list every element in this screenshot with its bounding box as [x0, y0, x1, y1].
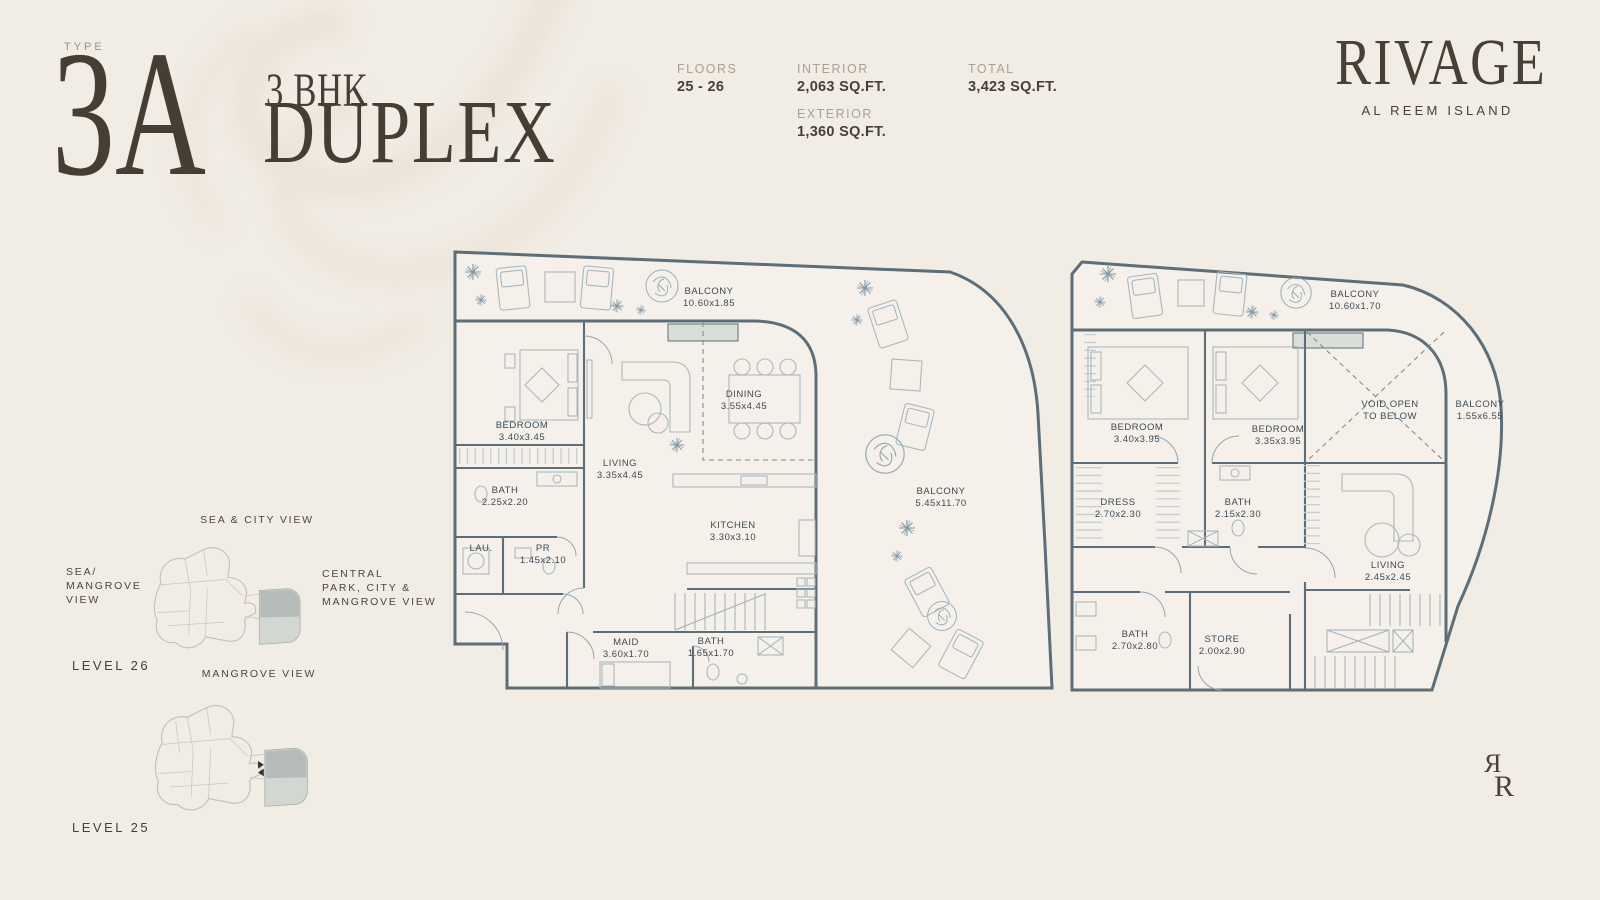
room-label-void: VOID OPEN TO BELOW	[1361, 399, 1418, 422]
svg-text:2.70x2.30: 2.70x2.30	[1095, 509, 1141, 520]
svg-text:BEDROOM: BEDROOM	[496, 420, 549, 431]
svg-text:BATH: BATH	[1122, 629, 1149, 640]
svg-text:LIVING: LIVING	[1371, 560, 1405, 571]
duplex-text: DUPLEX	[263, 88, 557, 178]
stat-floors-value: 25 - 26	[677, 79, 737, 95]
room-label-dining: DINING 3.55x4.45	[721, 389, 767, 412]
room-label-balcony-side: BALCONY 1.55x6.55	[1456, 399, 1505, 422]
svg-text:LIVING: LIVING	[603, 458, 637, 469]
stat-exterior: EXTERIOR 1,360 SQ.FT.	[797, 107, 886, 140]
room-label-store: STORE 2.00x2.90	[1199, 634, 1245, 657]
svg-text:3.35x3.95: 3.35x3.95	[1255, 436, 1301, 447]
svg-text:1.55x6.55: 1.55x6.55	[1457, 411, 1503, 422]
svg-text:1.65x1.70: 1.65x1.70	[688, 648, 734, 659]
stat-total-value: 3,423 SQ.FT.	[968, 79, 1057, 95]
keyplan-view-right-line3: MANGROVE VIEW	[322, 595, 436, 609]
brand-location: AL REEM ISLAND	[1335, 103, 1540, 118]
svg-text:LAU.: LAU.	[469, 543, 492, 554]
room-label-balcony-top: BALCONY 10.60x1.70	[1329, 289, 1381, 312]
svg-text:DRESS: DRESS	[1100, 497, 1135, 508]
svg-text:BEDROOM: BEDROOM	[1111, 422, 1164, 433]
svg-text:BALCONY: BALCONY	[1456, 399, 1505, 410]
svg-text:2.00x2.90: 2.00x2.90	[1199, 646, 1245, 657]
floorplan-brochure-page: TYPE 3A 3 BHK DUPLEX FLOORS 25 - 26 INTE…	[0, 0, 1600, 900]
keyplan-level-26-diagram	[146, 534, 302, 660]
keyplan-view-left-line3: VIEW	[66, 593, 142, 607]
svg-text:BATH: BATH	[1225, 497, 1252, 508]
svg-text:2.15x2.30: 2.15x2.30	[1215, 509, 1261, 520]
svg-text:BALCONY: BALCONY	[1331, 289, 1380, 300]
svg-text:5.45x11.70: 5.45x11.70	[915, 498, 966, 509]
svg-text:STORE: STORE	[1204, 634, 1239, 645]
brand-logo-text: RIVAGE	[1335, 30, 1547, 96]
keyplan-view-right-line1: CENTRAL	[322, 567, 436, 581]
svg-text:2.70x2.80: 2.70x2.80	[1112, 641, 1158, 652]
svg-text:KITCHEN: KITCHEN	[710, 520, 755, 531]
stat-exterior-label: EXTERIOR	[797, 107, 886, 121]
keyplan-view-left-line2: MANGROVE	[66, 579, 142, 593]
stat-floors-label: FLOORS	[677, 62, 737, 76]
svg-text:BEDROOM: BEDROOM	[1252, 424, 1305, 435]
svg-text:3.60x1.70: 3.60x1.70	[603, 649, 649, 660]
monogram-right-glyph: R	[1494, 770, 1514, 803]
svg-text:BALCONY: BALCONY	[685, 286, 734, 297]
svg-text:MAID: MAID	[613, 637, 639, 648]
svg-text:BATH: BATH	[698, 636, 725, 647]
room-label-living: LIVING 3.35x4.45	[597, 458, 643, 481]
unit-type-value: 3A	[52, 24, 272, 204]
svg-text:3.30x3.10: 3.30x3.10	[710, 532, 756, 543]
room-label-balcony-side: BALCONY 5.45x11.70	[915, 486, 966, 509]
floorplan-level-26: BALCONY 10.60x1.70 BEDROOM 3.40x3.95 BED…	[1060, 252, 1510, 692]
ac-ledge	[1293, 333, 1363, 348]
brand-monogram-icon: Я R	[1468, 744, 1540, 808]
keyplan-level-25-diagram	[144, 696, 312, 818]
stat-interior-label: INTERIOR	[797, 62, 886, 76]
keyplan-view-right: CENTRAL PARK, CITY & MANGROVE VIEW	[322, 567, 436, 609]
stat-exterior-value: 1,360 SQ.FT.	[797, 124, 886, 140]
svg-text:3.35x4.45: 3.35x4.45	[597, 470, 643, 481]
room-label-balcony-top: BALCONY 10.60x1.85	[683, 286, 735, 309]
room-label-laundry: LAU.	[469, 543, 492, 554]
keyplan-level-26-label: LEVEL 26	[72, 658, 150, 673]
room-label-bedroom-1: BEDROOM 3.40x3.95	[1111, 422, 1164, 445]
keyplan-view-left: SEA/ MANGROVE VIEW	[66, 565, 142, 607]
stat-total: TOTAL 3,423 SQ.FT.	[968, 62, 1057, 95]
svg-text:VOID OPEN: VOID OPEN	[1361, 399, 1418, 410]
room-label-kitchen: KITCHEN 3.30x3.10	[710, 520, 756, 543]
keyplan-view-right-line2: PARK, CITY &	[322, 581, 436, 595]
svg-text:PR: PR	[536, 543, 550, 554]
stat-interior: INTERIOR 2,063 SQ.FT.	[797, 62, 886, 95]
room-label-bedroom: BEDROOM 3.40x3.45	[496, 420, 549, 443]
svg-text:10.60x1.85: 10.60x1.85	[683, 298, 735, 309]
svg-text:10.60x1.70: 10.60x1.70	[1329, 301, 1381, 312]
room-label-living: LIVING 2.45x2.45	[1365, 560, 1411, 583]
unit-subtitle-duplex: DUPLEX	[263, 88, 630, 178]
unit-type-text: 3A	[52, 24, 206, 204]
floorplan-level-25: BALCONY 10.60x1.85 BEDROOM 3.40x3.45 BAT…	[445, 242, 1057, 694]
svg-text:TO BELOW: TO BELOW	[1363, 411, 1417, 422]
svg-text:3.55x4.45: 3.55x4.45	[721, 401, 767, 412]
stat-interior-value: 2,063 SQ.FT.	[797, 79, 886, 95]
brand-logo: RIVAGE	[1335, 30, 1594, 96]
svg-text:BALCONY: BALCONY	[917, 486, 966, 497]
stat-total-label: TOTAL	[968, 62, 1057, 76]
svg-text:3.40x3.45: 3.40x3.45	[499, 432, 545, 443]
keyplan-view-top: SEA & CITY VIEW	[181, 513, 333, 527]
svg-text:DINING: DINING	[726, 389, 762, 400]
keyplan-view-bottom: MANGROVE VIEW	[184, 667, 334, 681]
svg-text:3.40x3.95: 3.40x3.95	[1114, 434, 1160, 445]
svg-text:BATH: BATH	[492, 485, 519, 496]
svg-text:2.45x2.45: 2.45x2.45	[1365, 572, 1411, 583]
svg-text:1.45x2.10: 1.45x2.10	[520, 555, 566, 566]
keyplan-level-25-label: LEVEL 25	[72, 820, 150, 835]
keyplan-view-left-line1: SEA/	[66, 565, 142, 579]
svg-text:2.25x2.20: 2.25x2.20	[482, 497, 528, 508]
room-label-bedroom-2: BEDROOM 3.35x3.95	[1252, 424, 1305, 447]
room-label-dress: DRESS 2.70x2.30	[1095, 497, 1141, 520]
stat-floors: FLOORS 25 - 26	[677, 62, 737, 95]
